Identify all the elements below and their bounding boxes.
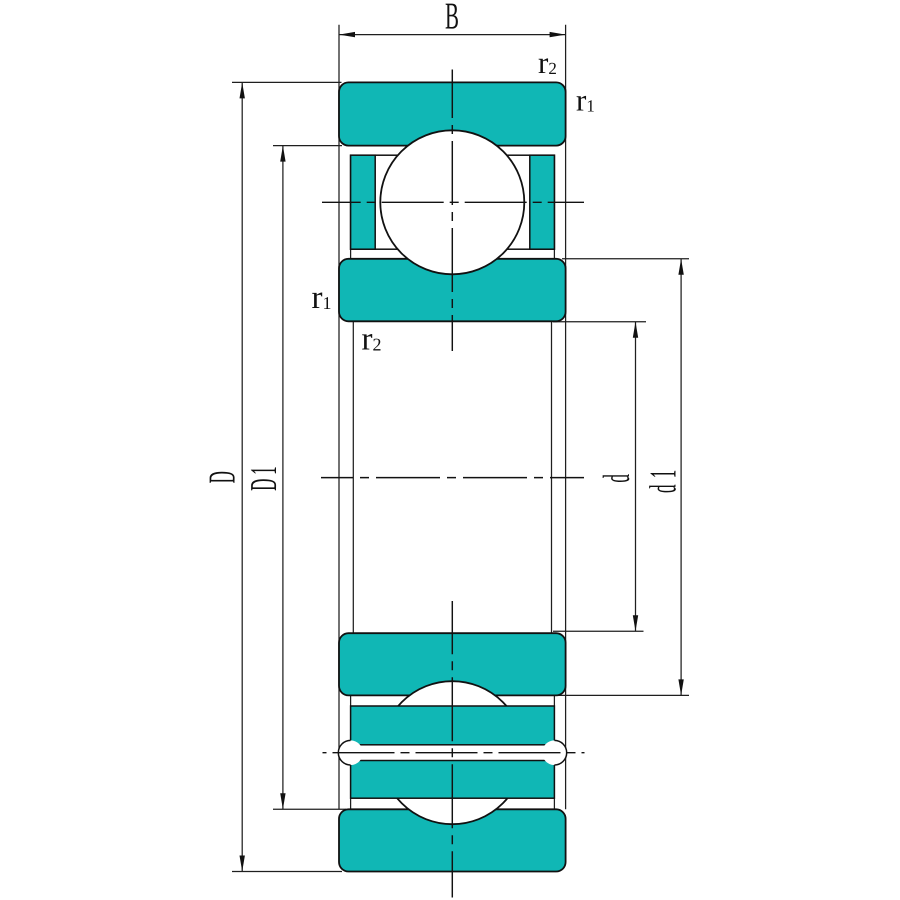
svg-text:B: B bbox=[445, 0, 459, 38]
svg-text:d: d bbox=[596, 474, 638, 483]
svg-text:d1: d1 bbox=[643, 463, 685, 493]
svg-text:D1: D1 bbox=[243, 463, 285, 491]
svg-text:D: D bbox=[202, 471, 244, 483]
